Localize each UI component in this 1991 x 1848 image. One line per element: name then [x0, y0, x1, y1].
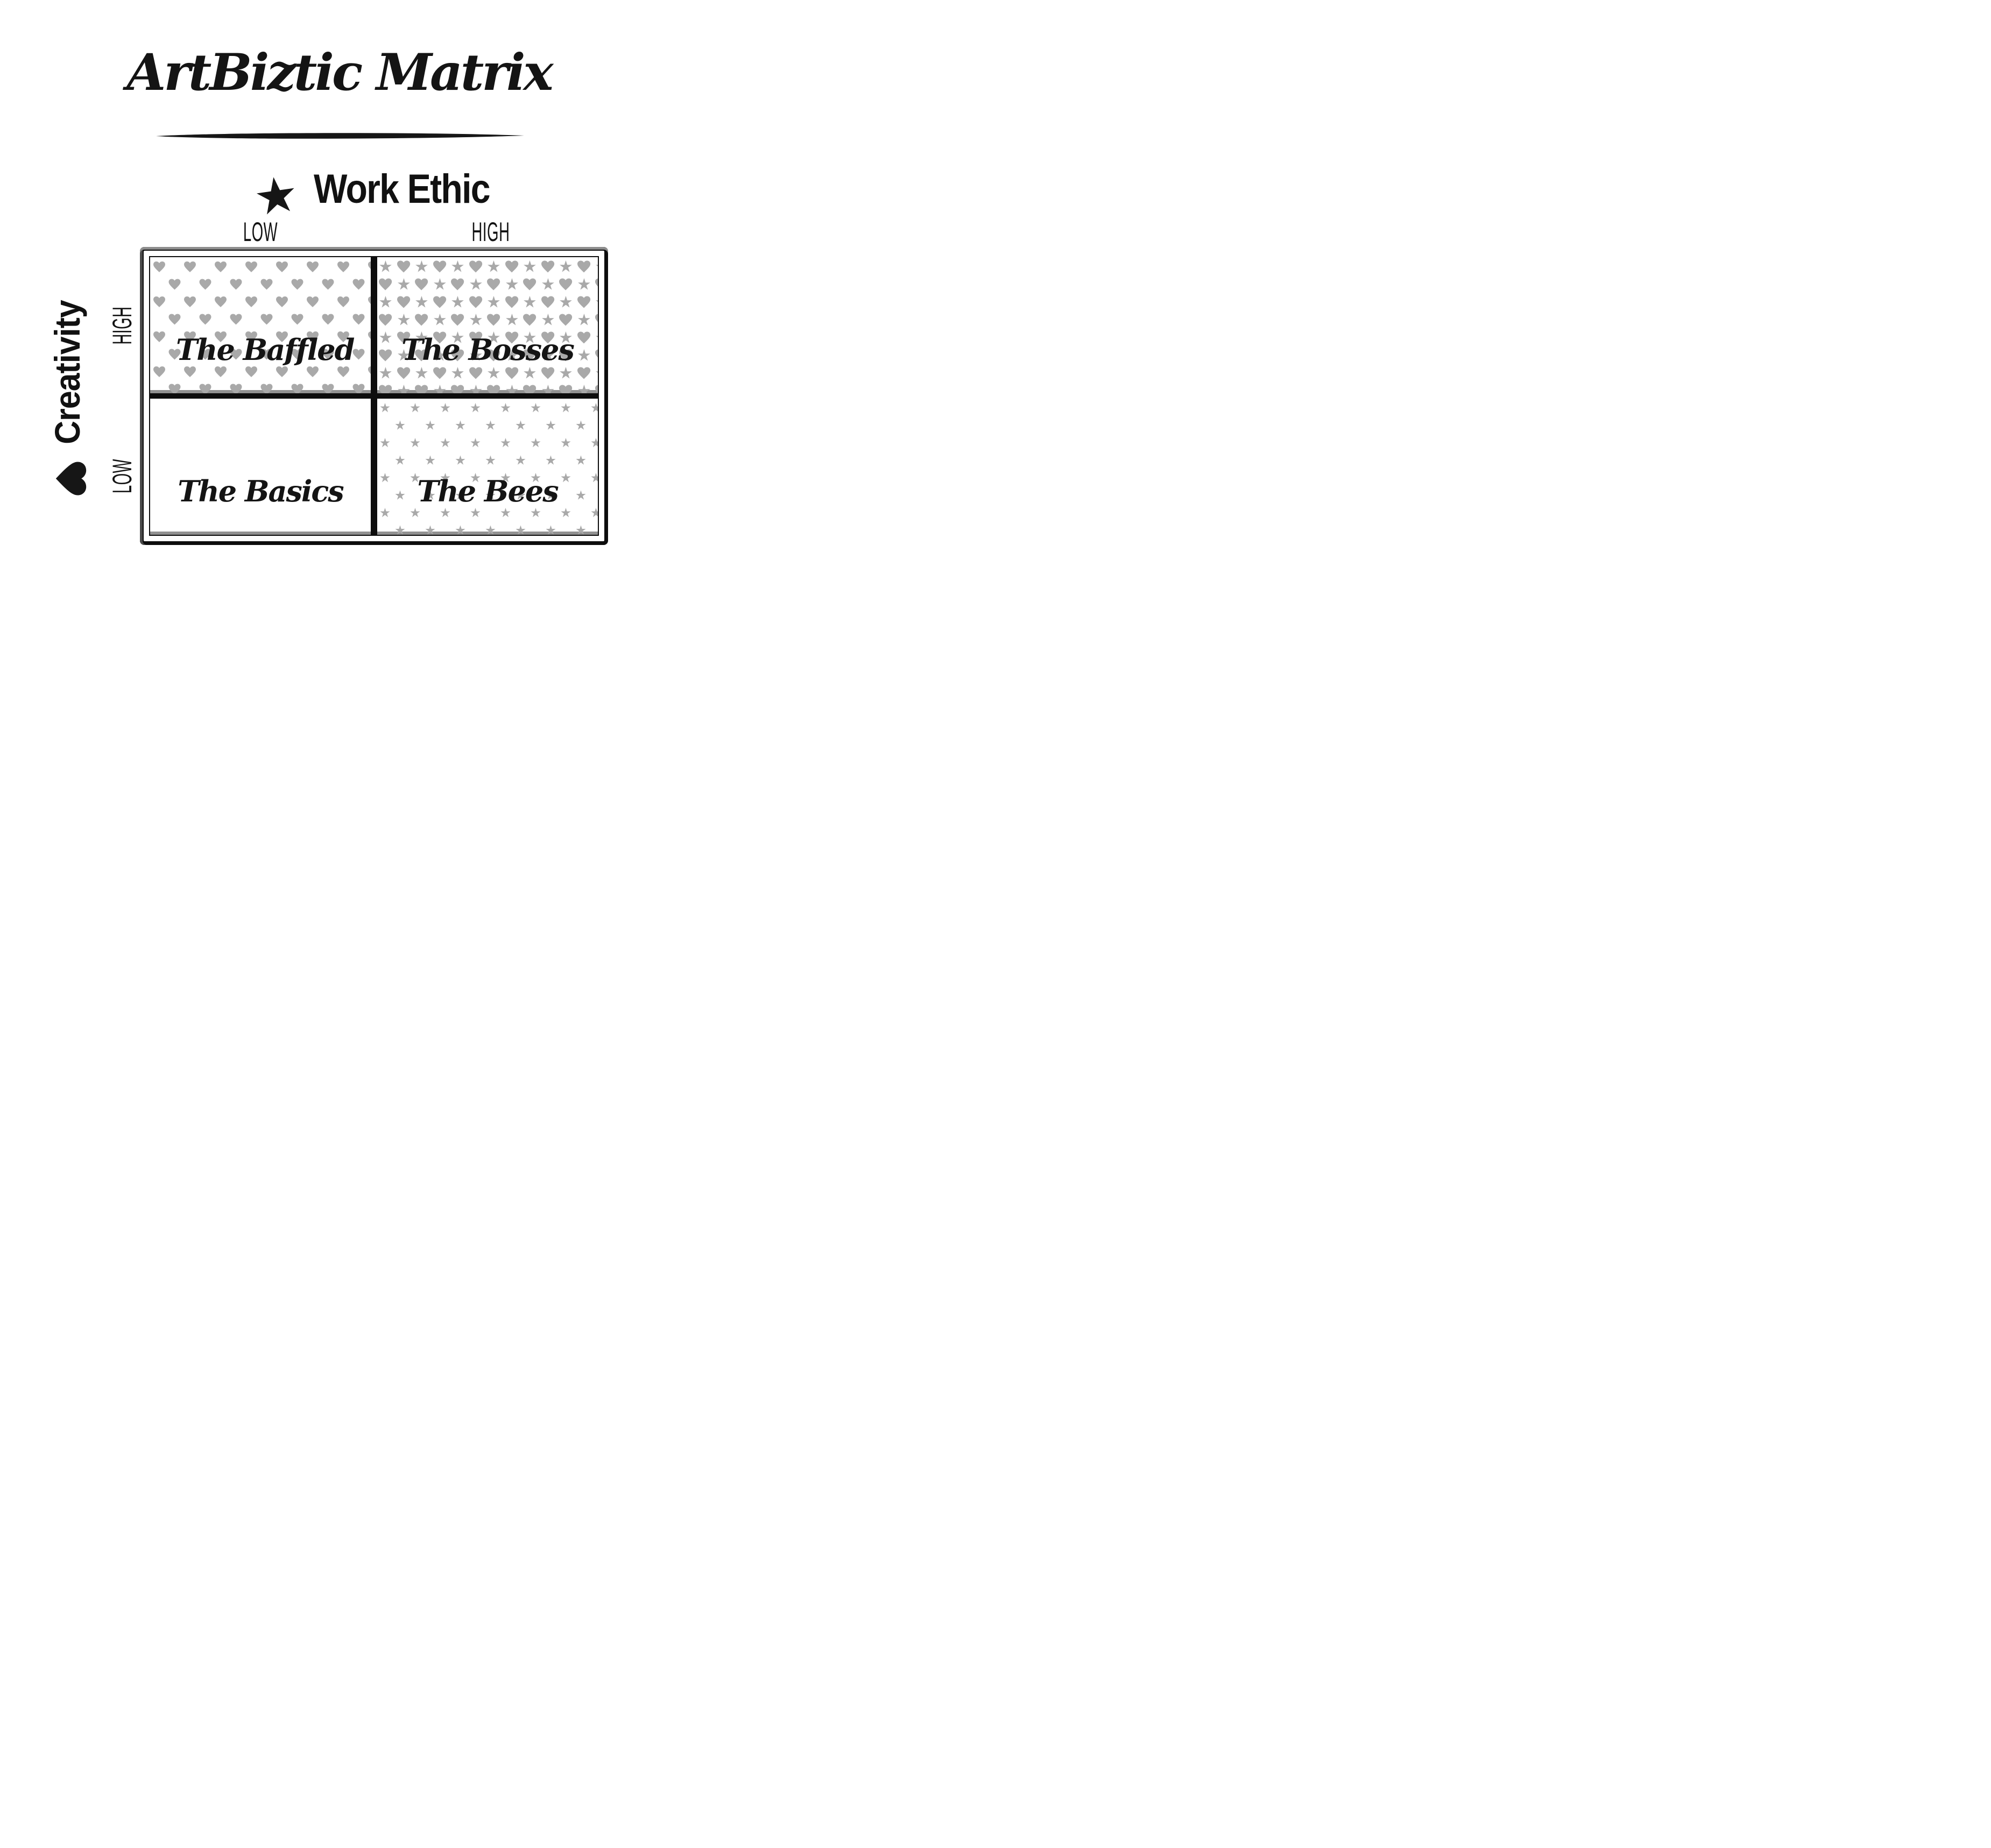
- title-underline-stroke: [156, 133, 524, 139]
- matrix-pinstripe: The Baffled The Bosses The Basics The Be…: [144, 251, 604, 541]
- quadrant-label-basics: The Basics: [178, 474, 343, 508]
- x-axis-low-label: LOW: [243, 216, 278, 247]
- x-axis-high-label: HIGH: [472, 216, 510, 247]
- y-axis-low-label: LOW: [107, 459, 138, 493]
- quadrant-bottom-right: The Bees: [377, 399, 598, 535]
- quadrant-label-bees: The Bees: [417, 474, 557, 508]
- quadrant-top-left: The Baffled: [150, 257, 371, 393]
- x-axis-title: Work Ethic: [314, 166, 490, 213]
- page-title: ArtBiztic Matrix: [70, 45, 608, 101]
- hearts-stars-pattern: [377, 257, 598, 393]
- title-underline: [155, 131, 526, 141]
- matrix-grid: The Baffled The Bosses The Basics The Be…: [149, 256, 599, 536]
- y-axis-high-label: HIGH: [107, 307, 138, 345]
- quadrant-label-bosses: The Bosses: [401, 332, 574, 367]
- quadrant-top-right: The Bosses: [377, 257, 598, 393]
- matrix-frame: The Baffled The Bosses The Basics The Be…: [140, 247, 608, 545]
- heart-icon: [56, 462, 87, 495]
- y-axis-title: Creativity: [47, 300, 88, 444]
- artbiztic-matrix-page: { "title": "ArtBiztic Matrix", "axes": {…: [0, 0, 663, 616]
- star-icon: [253, 174, 298, 217]
- stars-pattern: [377, 399, 598, 535]
- quadrant-bottom-left: The Basics: [150, 399, 371, 535]
- hearts-pattern: [150, 257, 371, 393]
- quadrant-label-baffled: The Baffled: [176, 332, 354, 367]
